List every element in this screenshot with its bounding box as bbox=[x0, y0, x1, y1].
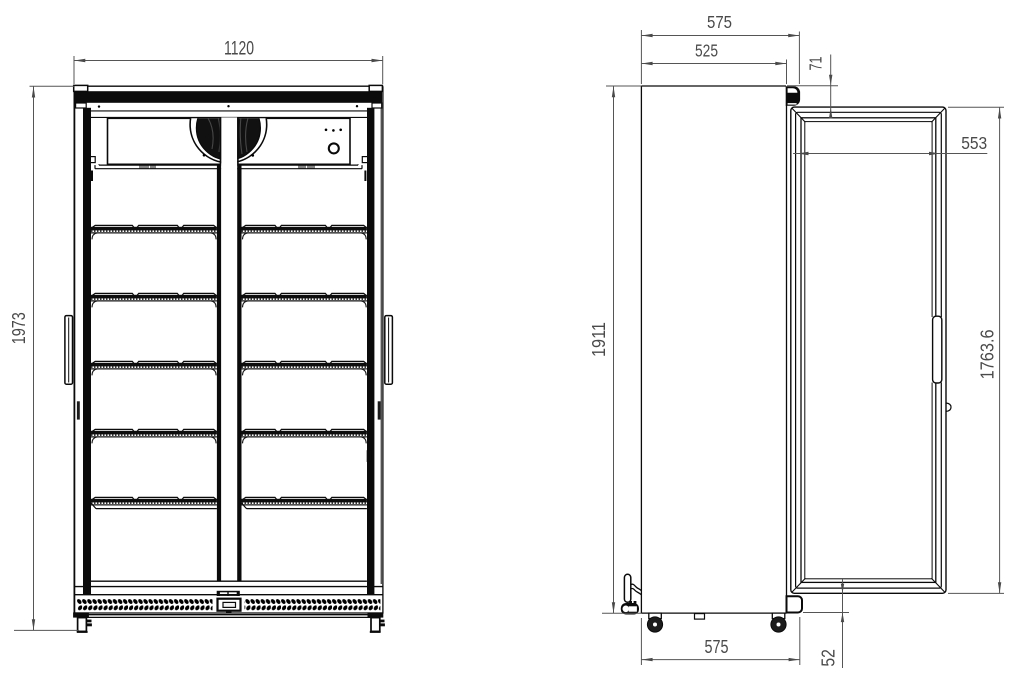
svg-text:575: 575 bbox=[705, 636, 729, 657]
svg-text:71: 71 bbox=[806, 57, 826, 71]
svg-text:575: 575 bbox=[707, 12, 732, 32]
svg-text:1911: 1911 bbox=[589, 322, 609, 357]
svg-text:52: 52 bbox=[819, 649, 839, 667]
svg-text:1973: 1973 bbox=[9, 312, 29, 344]
svg-text:525: 525 bbox=[695, 40, 718, 60]
svg-text:1120: 1120 bbox=[224, 39, 254, 60]
svg-text:1763.6: 1763.6 bbox=[978, 329, 998, 379]
svg-text:553: 553 bbox=[961, 133, 987, 153]
